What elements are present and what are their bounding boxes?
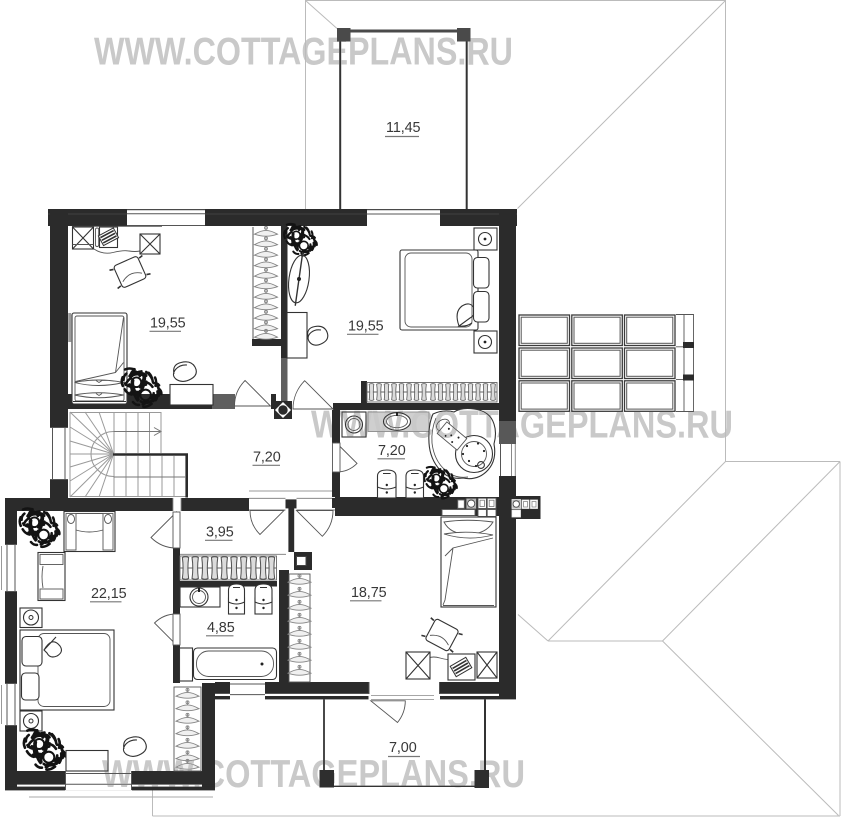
- svg-text:7,20: 7,20: [253, 450, 281, 466]
- svg-text:4,85: 4,85: [207, 620, 235, 636]
- svg-text:3,95: 3,95: [206, 525, 234, 541]
- svg-text:22,15: 22,15: [91, 586, 127, 602]
- svg-text:19,55: 19,55: [348, 319, 384, 335]
- svg-text:WWW.COTTAGEPLANS.RU: WWW.COTTAGEPLANS.RU: [102, 753, 525, 796]
- svg-text:19,55: 19,55: [150, 316, 186, 332]
- svg-text:WWW.COTTAGEPLANS.RU: WWW.COTTAGEPLANS.RU: [94, 31, 513, 74]
- svg-text:11,45: 11,45: [386, 120, 421, 136]
- svg-text:18,75: 18,75: [351, 585, 387, 601]
- svg-text:WWW.COTTAGEPLANS.RU: WWW.COTTAGEPLANS.RU: [311, 404, 733, 447]
